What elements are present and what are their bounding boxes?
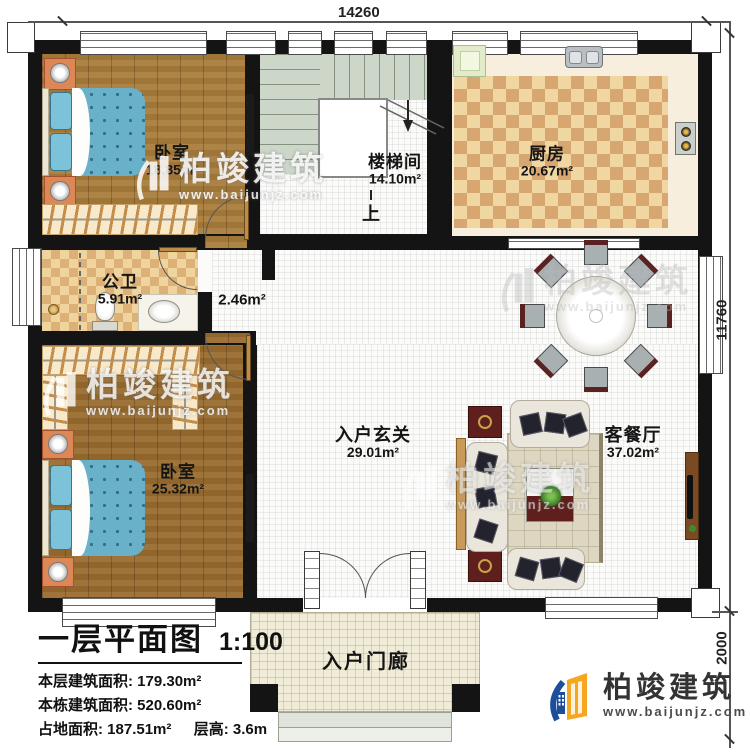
burner-icon <box>681 141 691 151</box>
floor-plan: 卧室 18.85m² 楼梯间 14.10m² 上 厨房 20.67m² 公卫 5… <box>0 0 750 754</box>
sofa-left <box>466 442 508 552</box>
room-area: 20.67m² <box>521 164 573 180</box>
dimension-right-value: 11760 <box>714 300 731 341</box>
brand-name: 柏竣建筑 <box>603 673 747 703</box>
bathroom-label: 公卫 5.91m² <box>98 273 142 308</box>
table-center <box>589 309 603 323</box>
foyer-label: 入户玄关 29.01m² <box>335 425 411 461</box>
bedroom-bottom-door-leaf <box>246 335 251 381</box>
bed-bottom <box>42 460 145 556</box>
nightstand <box>42 557 74 587</box>
wardrobe-bedroom-top <box>42 204 198 235</box>
sofa-cushion <box>558 557 584 583</box>
wardrobe-column <box>172 375 198 430</box>
brand-logo: 柏竣建筑 www.baijunjz.com <box>545 668 747 724</box>
sink-basin <box>586 51 599 64</box>
plant-icon <box>689 525 696 532</box>
dimension-right-lower-value: 2000 <box>714 631 731 664</box>
bedroom-bottom-label: 卧室 25.32m² <box>152 463 204 498</box>
bed-headboard <box>42 460 49 556</box>
building-area-line: 本栋建筑面积: 520.60m² <box>38 694 283 718</box>
bed-pillow <box>50 133 72 171</box>
wardrobe-bedroom-bottom <box>42 346 200 375</box>
lamp-icon <box>50 63 70 83</box>
sofa-bottom <box>507 548 585 590</box>
room-area: 14.10m² <box>368 172 422 188</box>
tv-bedroom-top <box>246 94 254 156</box>
plan-scale: 1:100 <box>219 628 283 657</box>
corner-box-top-left <box>7 22 35 53</box>
brand-website: www.baijunjz.com <box>603 704 747 719</box>
bathroom-door-leaf <box>159 247 197 252</box>
nightstand <box>42 430 74 459</box>
kitchen-label: 厨房 20.67m² <box>521 145 573 180</box>
window-stair-3 <box>334 31 373 55</box>
room-name: 卧室 <box>146 144 198 163</box>
side-table <box>468 406 502 438</box>
plan-title: 一层平面图 <box>38 614 203 659</box>
tv-bedroom-bottom <box>246 474 254 542</box>
sink-basin <box>569 51 582 64</box>
bed-pillow <box>50 92 72 130</box>
porch-step <box>278 727 452 742</box>
console-board <box>456 438 466 550</box>
compass-detail <box>478 559 492 573</box>
entry-door-opening <box>303 598 427 612</box>
room-name: 楼梯间 <box>368 153 422 172</box>
porch-step <box>278 712 452 728</box>
appliance-top <box>460 51 480 71</box>
corner-box-top-right <box>691 21 721 53</box>
sofa-cushion <box>519 412 543 436</box>
room-area: 29.01m² <box>335 445 411 461</box>
stair-up-label: 上 <box>362 204 380 224</box>
burner-icon <box>681 127 691 137</box>
plant-icon <box>541 486 561 506</box>
window-stair-2 <box>288 31 322 55</box>
dining-chair <box>523 304 545 328</box>
nightstand <box>44 58 76 90</box>
bed-top <box>42 88 145 176</box>
kitchen-sink <box>565 46 603 68</box>
wall-left <box>28 40 42 612</box>
chair-back <box>584 240 608 245</box>
title-block: 一层平面图 1:100 本层建筑面积: 179.30m² 本栋建筑面积: 520… <box>38 614 283 742</box>
window-living-bottom <box>545 597 658 619</box>
vestibule-area-label: 2.46m² <box>218 293 266 310</box>
bed-pillow <box>50 465 72 506</box>
chair-back <box>584 387 608 392</box>
porch-label: 入户门廊 <box>322 651 410 673</box>
bathroom-door-gap <box>198 250 212 292</box>
dining-chair <box>584 367 608 389</box>
wall-vestibule-stub <box>262 234 275 280</box>
stair-flight-left <box>260 54 320 174</box>
window-bathroom-bay <box>12 248 42 326</box>
kitchen-living-opening <box>508 238 640 249</box>
window-bedroom-top <box>80 31 207 55</box>
stove <box>675 122 696 155</box>
dining-table <box>556 276 636 356</box>
corner-box-bottom-right <box>691 588 720 618</box>
room-name: 公卫 <box>98 273 142 292</box>
room-area: 5.91m² <box>98 292 142 308</box>
tv-icon <box>687 475 693 519</box>
toilet-tank <box>92 321 118 331</box>
wall-bedroom-bottom-right <box>243 345 257 598</box>
dining-chair <box>584 243 608 265</box>
chair-back <box>667 304 672 328</box>
bedroom-top-door-leaf <box>244 196 249 240</box>
room-area: 18.85m² <box>146 163 198 179</box>
dimension-top-value: 14260 <box>338 4 380 21</box>
entry-door-left-jamb <box>304 551 320 609</box>
floor-drain-icon <box>48 304 59 315</box>
title-row: 一层平面图 1:100 <box>38 614 283 659</box>
dining-chair <box>647 304 669 328</box>
stair-flight-top <box>320 54 427 100</box>
bathroom-partition <box>79 252 81 330</box>
chair-back <box>520 304 525 328</box>
tv-cabinet <box>685 452 699 540</box>
wardrobe-column <box>42 375 68 430</box>
sofa-cushion <box>474 451 498 475</box>
entry-door-right-jamb <box>410 551 426 609</box>
dimension-extension <box>712 611 738 613</box>
lamp-icon <box>48 434 68 454</box>
brand-logo-icon <box>545 668 595 724</box>
footprint-line: 占地面积: 187.51m² 层高: 3.6m <box>38 718 283 742</box>
wall-stair-kitchen <box>427 54 452 238</box>
stairwell-label: 楼梯间 14.10m² <box>368 153 422 188</box>
compass-detail <box>478 415 492 429</box>
lamp-icon <box>48 562 68 582</box>
floor-area-line: 本层建筑面积: 179.30m² <box>38 670 283 694</box>
sofa-cushion <box>474 485 497 508</box>
brand-text: 柏竣建筑 www.baijunjz.com <box>603 673 747 718</box>
bathroom-sink <box>148 300 180 323</box>
coffee-table <box>526 468 574 522</box>
room-name: 客餐厅 <box>605 425 662 445</box>
window-stair-1 <box>226 31 276 55</box>
sofa-cushion <box>515 557 540 582</box>
bed-pillow <box>50 509 72 550</box>
kitchen-appliance <box>453 45 486 77</box>
bed-headboard <box>42 88 49 176</box>
bedroom-top-label: 卧室 18.85m² <box>146 144 198 179</box>
lamp-icon <box>50 181 70 201</box>
sofa-cushion <box>473 518 498 543</box>
footprint-value: 占地面积: 187.51m² <box>38 721 171 738</box>
porch-column <box>452 684 480 712</box>
room-area: 25.32m² <box>152 482 204 498</box>
sofa-top <box>510 400 590 448</box>
room-name: 入户玄关 <box>335 425 411 445</box>
window-stair-4 <box>386 31 427 55</box>
room-name: 厨房 <box>521 145 573 164</box>
storey-height-value: 层高: 3.6m <box>194 721 267 738</box>
dimension-line-top <box>28 21 730 23</box>
side-table <box>468 550 502 582</box>
living-dining-label: 客餐厅 37.02m² <box>605 425 662 461</box>
title-underline <box>38 662 242 664</box>
room-area: 37.02m² <box>605 445 662 461</box>
room-name: 卧室 <box>152 463 204 482</box>
